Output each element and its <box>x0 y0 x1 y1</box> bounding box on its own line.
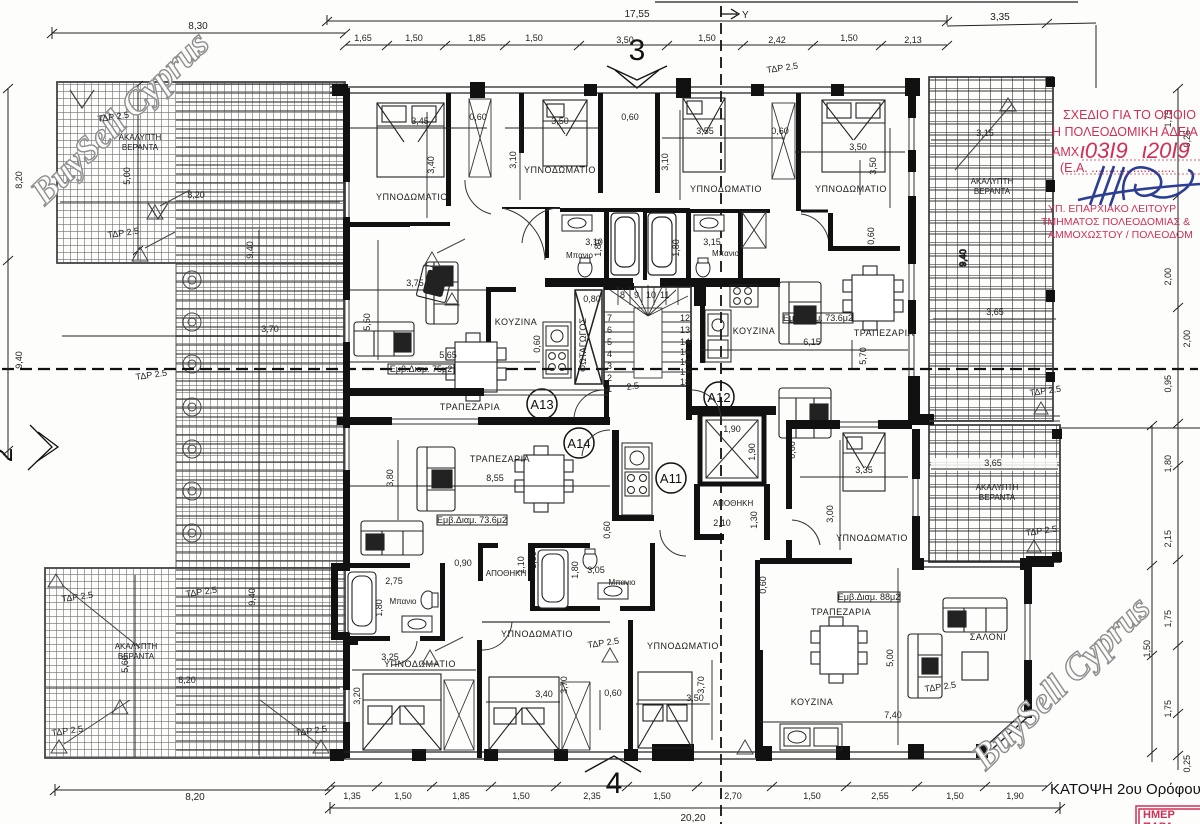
svg-text:ΤΡΑΠΕΖΑΡΙΑ: ΤΡΑΠΕΖΑΡΙΑ <box>440 402 500 412</box>
svg-text:ΚΟΥΖΙΝΑ: ΚΟΥΖΙΝΑ <box>791 697 833 707</box>
svg-text:1,75: 1,75 <box>1163 610 1173 628</box>
svg-text:16: 16 <box>680 357 690 367</box>
svg-text:1,30: 1,30 <box>749 511 759 529</box>
svg-text:17,55: 17,55 <box>624 9 649 20</box>
svg-text:0,60: 0,60 <box>771 126 789 136</box>
svg-text:Η ΠΟΛΕΟΔΟΜΙΚΗ ΑΔΕΙΑ Μ: Η ΠΟΛΕΟΔΟΜΙΚΗ ΑΔΕΙΑ Μ <box>1052 125 1200 139</box>
svg-text:0,80: 0,80 <box>583 294 601 304</box>
svg-text:ΥΠΝΟΔΩΜΑΤΙΟ: ΥΠΝΟΔΩΜΑΤΙΟ <box>836 533 908 543</box>
svg-text:0,25: 0,25 <box>1182 755 1192 773</box>
svg-text:9,40: 9,40 <box>14 351 24 369</box>
svg-text:ΤΜΗΜΑΤΟΣ ΠΟΛΕΟΔΟΜΙΑΣ &: ΤΜΗΜΑΤΟΣ ΠΟΛΕΟΔΟΜΙΑΣ & <box>1041 216 1190 228</box>
svg-text:1,50: 1,50 <box>803 791 821 801</box>
svg-text:A13: A13 <box>530 397 553 412</box>
svg-text:9,40: 9,40 <box>958 249 968 267</box>
svg-text:ΚΟΥΖΙΝΑ: ΚΟΥΖΙΝΑ <box>495 317 537 327</box>
svg-text:3,35: 3,35 <box>855 465 873 475</box>
svg-text:4: 4 <box>606 767 623 800</box>
svg-text:1,50: 1,50 <box>946 791 964 801</box>
svg-text:11: 11 <box>660 290 669 300</box>
svg-text:12: 12 <box>680 313 690 323</box>
svg-text:7: 7 <box>607 313 612 323</box>
svg-text:ΑΚΑΛΥΠΤΗ: ΑΚΑΛΥΠΤΗ <box>971 177 1014 186</box>
svg-text:ΥΠΝΟΔΩΜΑΤΙΟ: ΥΠΝΟΔΩΜΑΤΙΟ <box>376 192 448 202</box>
svg-text:ΣΧΕΔΙΟ ΓΙΑ ΤΟ ΟΠΟΙΟ ΕΚ: ΣΧΕΔΙΟ ΓΙΑ ΤΟ ΟΠΟΙΟ ΕΚ <box>1063 108 1200 122</box>
svg-text:ΑΠΟΘΗΚΗ: ΑΠΟΘΗΚΗ <box>713 499 754 508</box>
svg-text:3,15: 3,15 <box>703 237 721 247</box>
svg-text:ΑΜΜΟΧΩΣΤΟΥ / ΠΟΛΕΟΔΟΜ: ΑΜΜΟΧΩΣΤΟΥ / ΠΟΛΕΟΔΟΜ <box>1048 229 1193 241</box>
svg-text:4: 4 <box>607 349 612 359</box>
svg-text:1,80: 1,80 <box>593 239 603 257</box>
svg-text:14: 14 <box>680 337 690 347</box>
svg-text:9,40: 9,40 <box>247 588 257 606</box>
svg-text:0,60: 0,60 <box>602 521 612 539</box>
svg-text:ΤΡΑΠΕΖΑΡΙΑ: ΤΡΑΠΕΖΑΡΙΑ <box>854 328 914 338</box>
svg-text:8,20: 8,20 <box>187 190 205 200</box>
svg-text:3,70: 3,70 <box>559 676 569 694</box>
svg-text:3,50: 3,50 <box>849 142 867 152</box>
svg-text:8,20: 8,20 <box>178 675 196 685</box>
svg-text:ΥΠΝΟΔΩΜΑΤΙΟ: ΥΠΝΟΔΩΜΑΤΙΟ <box>690 184 762 194</box>
svg-text:Y: Y <box>742 10 749 21</box>
svg-text:1,50: 1,50 <box>698 33 716 43</box>
svg-text:Μπανιο: Μπανιο <box>566 251 593 260</box>
svg-text:2,00: 2,00 <box>1163 268 1173 286</box>
svg-text:3,45: 3,45 <box>411 116 429 126</box>
svg-text:7,40: 7,40 <box>884 710 902 720</box>
svg-text:2,70: 2,70 <box>724 791 742 801</box>
svg-text:1,50: 1,50 <box>394 791 412 801</box>
svg-text:1,50: 1,50 <box>405 33 423 43</box>
svg-text:3,50: 3,50 <box>868 157 878 175</box>
svg-text:ΗΜΕΡ: ΗΜΕΡ <box>1143 809 1175 821</box>
svg-text:6,15: 6,15 <box>803 337 821 347</box>
svg-text:ΒΕΡΑΝΤΑ: ΒΕΡΑΝΤΑ <box>122 143 159 152</box>
svg-text:1,80: 1,80 <box>374 599 384 617</box>
svg-text:8: 8 <box>620 290 625 300</box>
svg-text:5,60: 5,60 <box>120 655 130 673</box>
svg-text:5,65: 5,65 <box>439 350 457 360</box>
svg-text:3,35: 3,35 <box>990 12 1010 23</box>
svg-text:1,10: 1,10 <box>516 556 526 574</box>
svg-text:0,60: 0,60 <box>621 112 639 122</box>
svg-text:13: 13 <box>680 325 690 335</box>
svg-text:18: 18 <box>680 377 690 387</box>
svg-text:20,20: 20,20 <box>680 813 705 824</box>
svg-text:0,60: 0,60 <box>758 576 768 594</box>
svg-text:1,85: 1,85 <box>452 791 470 801</box>
svg-text:1,50: 1,50 <box>840 33 858 43</box>
svg-text:3,25: 3,25 <box>381 652 399 662</box>
svg-text:ΑΜΧ: ΑΜΧ <box>1052 145 1080 159</box>
svg-text:3,65: 3,65 <box>984 458 1002 468</box>
svg-text:17: 17 <box>680 367 690 377</box>
svg-text:ΥΠΝΟΔΩΜΑΤΙΟ: ΥΠΝΟΔΩΜΑΤΙΟ <box>647 641 719 651</box>
svg-text:9: 9 <box>634 290 639 300</box>
svg-text:Εμβ.Διαμ. 73.6μ2: Εμβ.Διαμ. 73.6μ2 <box>783 313 853 323</box>
svg-text:A14: A14 <box>567 436 590 451</box>
svg-text:3: 3 <box>607 361 612 371</box>
svg-text:1,75: 1,75 <box>1163 700 1173 718</box>
svg-text:2,42: 2,42 <box>768 35 786 45</box>
svg-text:1: 1 <box>607 384 612 394</box>
svg-text:0,60: 0,60 <box>532 335 542 353</box>
svg-text:Μπανιο: Μπανιο <box>712 249 739 258</box>
svg-text:1,85: 1,85 <box>468 33 486 43</box>
svg-text:ΒΕΡΑΝΤΑ: ΒΕΡΑΝΤΑ <box>974 187 1011 196</box>
svg-text:ΚΟΥΖΙΝΑ: ΚΟΥΖΙΝΑ <box>733 326 775 336</box>
svg-text:2,13: 2,13 <box>904 35 922 45</box>
svg-text:8,20: 8,20 <box>14 171 24 189</box>
svg-text:8,20: 8,20 <box>185 792 205 803</box>
svg-text:0,95: 0,95 <box>1163 375 1173 393</box>
svg-text:3,40: 3,40 <box>426 156 436 174</box>
svg-text:3,10: 3,10 <box>508 151 518 169</box>
svg-text:3,50: 3,50 <box>551 116 569 126</box>
svg-text:2,15: 2,15 <box>1163 530 1173 548</box>
svg-text:1,50: 1,50 <box>525 33 543 43</box>
svg-text:3,10: 3,10 <box>660 153 670 171</box>
svg-text:2,35: 2,35 <box>583 791 601 801</box>
svg-text:3,75: 3,75 <box>406 278 424 288</box>
svg-text:5,00: 5,00 <box>885 649 895 667</box>
svg-text:9,40: 9,40 <box>245 241 255 259</box>
svg-text:3,80: 3,80 <box>385 469 395 487</box>
svg-text:5,50: 5,50 <box>362 313 372 331</box>
svg-text:ΚΑΤΟΨΗ 2ου Ορόφου: ΚΑΤΟΨΗ 2ου Ορόφου <box>1050 781 1200 798</box>
svg-text:0,60: 0,60 <box>469 112 487 122</box>
svg-text:ΥΠΝΟΔΩΜΑΤΙΟ: ΥΠΝΟΔΩΜΑΤΙΟ <box>501 629 573 639</box>
svg-text:0,60: 0,60 <box>604 688 622 698</box>
svg-text:5: 5 <box>607 337 612 347</box>
svg-text:0,90: 0,90 <box>454 558 472 568</box>
svg-text:3,55: 3,55 <box>696 126 714 136</box>
svg-text:ΥΠ. ΕΠΑΡΧΙΑΚΟ ΛΕΙΤΟΥΡ: ΥΠ. ΕΠΑΡΧΙΑΚΟ ΛΕΙΤΟΥΡ <box>1048 203 1176 215</box>
svg-text:ΑΚΑΛΥΠΤΗ: ΑΚΑΛΥΠΤΗ <box>115 642 158 651</box>
svg-text:5,00: 5,00 <box>122 167 132 185</box>
svg-text:1,50: 1,50 <box>653 791 671 801</box>
svg-text:15: 15 <box>680 347 690 357</box>
svg-text:3,15: 3,15 <box>976 128 994 138</box>
svg-text:1,65: 1,65 <box>354 33 372 43</box>
svg-text:2,75: 2,75 <box>385 576 403 586</box>
svg-text:A11: A11 <box>660 471 682 486</box>
svg-text:Μπανιο: Μπανιο <box>390 597 417 606</box>
svg-text:1,90: 1,90 <box>723 424 741 434</box>
svg-text:Εμβ.Διαμ. 75μ2: Εμβ.Διαμ. 75μ2 <box>390 364 452 374</box>
svg-text:ΣΑΛΟΝΙ: ΣΑΛΟΝΙ <box>970 632 1006 642</box>
svg-text:2: 2 <box>607 373 612 383</box>
svg-text:2.5: 2.5 <box>626 380 640 392</box>
svg-text:ΥΠΝΟΔΩΜΑΤΙΟ: ΥΠΝΟΔΩΜΑΤΙΟ <box>815 184 887 194</box>
svg-text:3,00: 3,00 <box>825 505 835 523</box>
svg-text:ι03Ι9: ι03Ι9 <box>1080 138 1128 163</box>
svg-text:1,80: 1,80 <box>570 561 580 579</box>
svg-text:1,35: 1,35 <box>343 791 361 801</box>
svg-text:1,50: 1,50 <box>512 791 530 801</box>
svg-text:10: 10 <box>646 290 656 300</box>
svg-text:3,20: 3,20 <box>352 687 362 705</box>
svg-text:3,40: 3,40 <box>535 689 553 699</box>
svg-text:1,90: 1,90 <box>1006 791 1024 801</box>
svg-text:ι20Ι9: ι20Ι9 <box>1142 138 1190 163</box>
svg-text:2,00: 2,00 <box>1182 330 1192 348</box>
svg-text:ΤΡΑΠΕΖΑΡΙΑ: ΤΡΑΠΕΖΑΡΙΑ <box>470 454 530 464</box>
svg-text:ΦΩΤΑΓΩΓΟΣ: ΦΩΤΑΓΩΓΟΣ <box>578 318 588 372</box>
svg-text:3,70: 3,70 <box>261 324 279 334</box>
svg-text:ΒΕΡΑΝΤΑ: ΒΕΡΑΝΤΑ <box>979 493 1016 502</box>
svg-text:2,55: 2,55 <box>871 791 889 801</box>
svg-text:Εμβ.Διαμ. 88μ2: Εμβ.Διαμ. 88μ2 <box>838 592 900 602</box>
svg-text:0,60: 0,60 <box>866 227 876 245</box>
svg-text:2,10: 2,10 <box>713 518 731 528</box>
svg-text:ΑΚΑΛΥΠΤΗ: ΑΚΑΛΥΠΤΗ <box>976 483 1019 492</box>
svg-text:Εμβ.Διαμ. 73.6μ2: Εμβ.Διαμ. 73.6μ2 <box>437 515 507 525</box>
svg-text:1,80: 1,80 <box>1163 455 1173 473</box>
svg-text:8,55: 8,55 <box>486 473 504 483</box>
svg-text:1,80: 1,80 <box>671 239 681 257</box>
svg-text:1,50: 1,50 <box>1142 640 1152 658</box>
svg-text:3,50: 3,50 <box>616 35 634 45</box>
svg-text:3,70: 3,70 <box>696 676 706 694</box>
svg-text:6: 6 <box>607 325 612 335</box>
svg-text:3,65: 3,65 <box>986 307 1004 317</box>
svg-text:Μπανιο: Μπανιο <box>609 578 636 587</box>
svg-text:1,90: 1,90 <box>747 443 757 461</box>
svg-text:ΤΡΑΠΕΖΑΡΙΑ: ΤΡΑΠΕΖΑΡΙΑ <box>811 607 871 617</box>
svg-text:3,05: 3,05 <box>587 565 605 575</box>
